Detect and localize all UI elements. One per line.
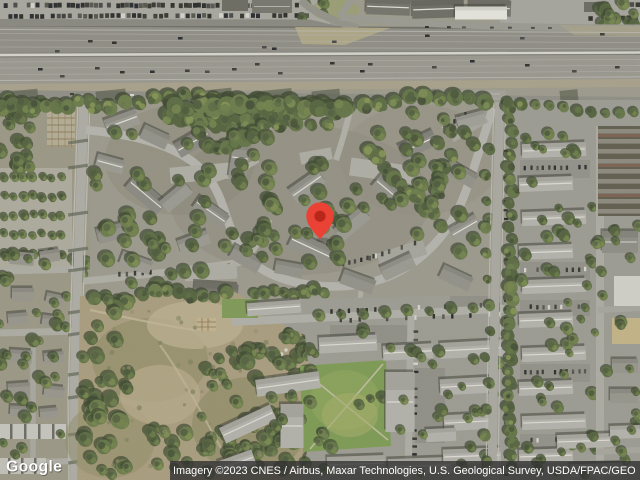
svg-text:Imagery ©2023 CNES / Airbus, M: Imagery ©2023 CNES / Airbus, Maxar Techn… [173,465,636,477]
svg-text:Google: Google [6,459,62,476]
